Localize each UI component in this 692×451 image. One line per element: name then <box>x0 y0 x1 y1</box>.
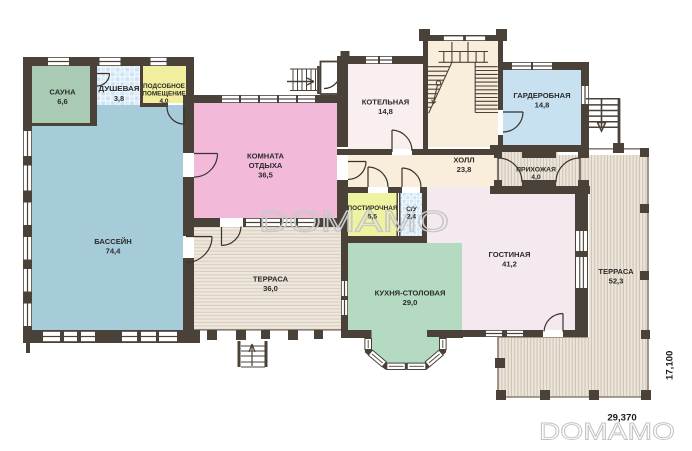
svg-text:5,5: 5,5 <box>368 214 377 221</box>
svg-text:ПОСТИРОЧНАЯ: ПОСТИРОЧНАЯ <box>348 205 398 212</box>
svg-text:3,8: 3,8 <box>114 94 124 103</box>
svg-text:DOMAMO: DOMAMO <box>539 419 675 446</box>
svg-text:ДУШЕВАЯ: ДУШЕВАЯ <box>99 84 140 93</box>
svg-text:17,100: 17,100 <box>665 351 676 380</box>
svg-text:С/У2,4: С/У2,4 <box>406 206 418 221</box>
